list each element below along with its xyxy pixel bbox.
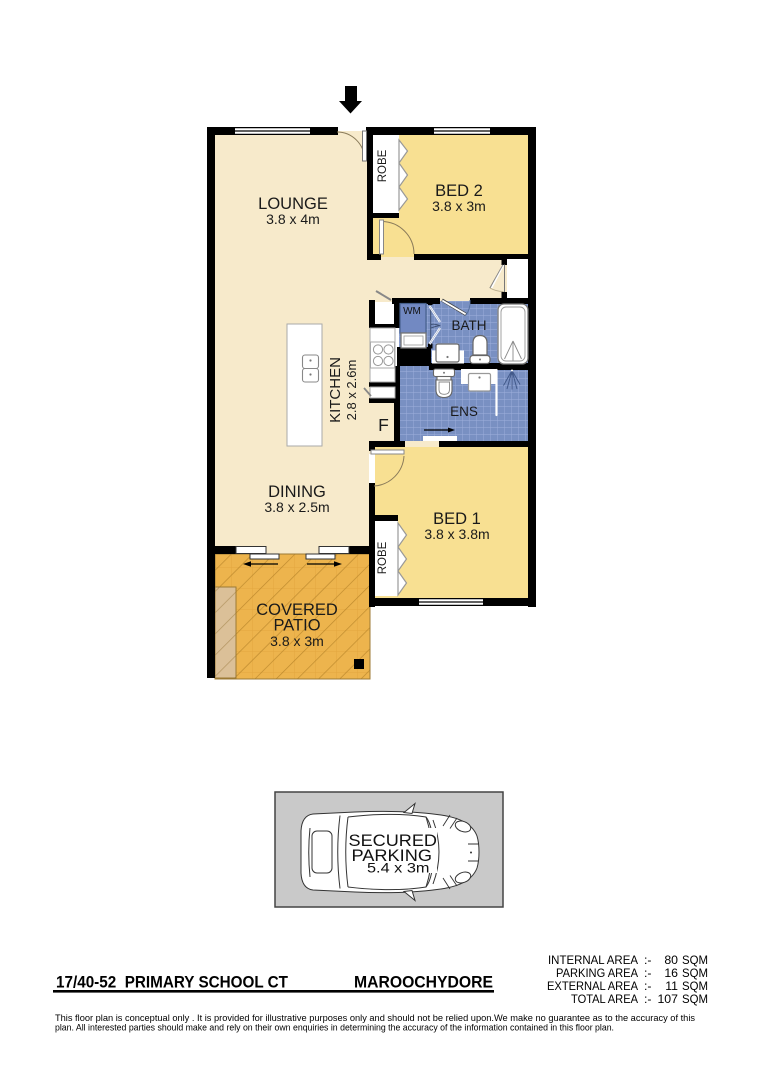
svg-text:KITCHEN: KITCHEN: [327, 357, 344, 423]
svg-text::-: :-: [644, 992, 652, 1006]
svg-text:16: 16: [664, 966, 678, 980]
svg-text:PARKING AREA: PARKING AREA: [556, 966, 639, 980]
svg-text:3.8 x 2.5m: 3.8 x 2.5m: [264, 499, 329, 515]
svg-text::-: :-: [644, 979, 652, 993]
svg-text:3.8 x 3.8m: 3.8 x 3.8m: [424, 526, 489, 542]
svg-text:ENS: ENS: [450, 404, 478, 419]
svg-text:3.8 x 3m: 3.8 x 3m: [432, 198, 486, 214]
svg-text:107: 107: [657, 992, 678, 1006]
svg-text:3.8 x 3m: 3.8 x 3m: [270, 633, 324, 649]
svg-text:ROBE: ROBE: [377, 541, 389, 574]
svg-text:PATIO: PATIO: [273, 617, 320, 635]
svg-text:SQM: SQM: [682, 979, 708, 993]
svg-text:17/40-52 PRIMARY SCHOOL CT: 17/40-52 PRIMARY SCHOOL CT: [56, 974, 288, 992]
svg-text:This floor plan is conceptual: This floor plan is conceptual only . It …: [55, 1013, 696, 1023]
svg-text::-: :-: [644, 966, 652, 980]
svg-text:2.8 x 2.6m: 2.8 x 2.6m: [344, 360, 359, 421]
svg-text:SQM: SQM: [682, 992, 708, 1006]
svg-text::-: :-: [644, 953, 652, 967]
svg-text:SQM: SQM: [682, 953, 708, 967]
svg-text:EXTERNAL AREA: EXTERNAL AREA: [547, 979, 639, 993]
svg-text:WM: WM: [403, 306, 421, 317]
svg-text:F: F: [378, 415, 389, 435]
svg-text:BATH: BATH: [451, 318, 486, 333]
svg-text:INTERNAL AREA: INTERNAL AREA: [548, 953, 639, 967]
svg-text:ROBE: ROBE: [377, 149, 389, 182]
svg-text:TOTAL AREA: TOTAL AREA: [571, 992, 639, 1006]
svg-text:plan. All interested parties s: plan. All interested parties should make…: [55, 1023, 614, 1033]
svg-text:MAROOCHYDORE: MAROOCHYDORE: [354, 974, 493, 992]
svg-text:5.4 x 3m: 5.4 x 3m: [367, 860, 430, 876]
svg-text:3.8 x 4m: 3.8 x 4m: [266, 211, 320, 227]
svg-text:80: 80: [664, 953, 678, 967]
svg-text:11: 11: [665, 979, 678, 993]
svg-text:SQM: SQM: [682, 966, 708, 980]
